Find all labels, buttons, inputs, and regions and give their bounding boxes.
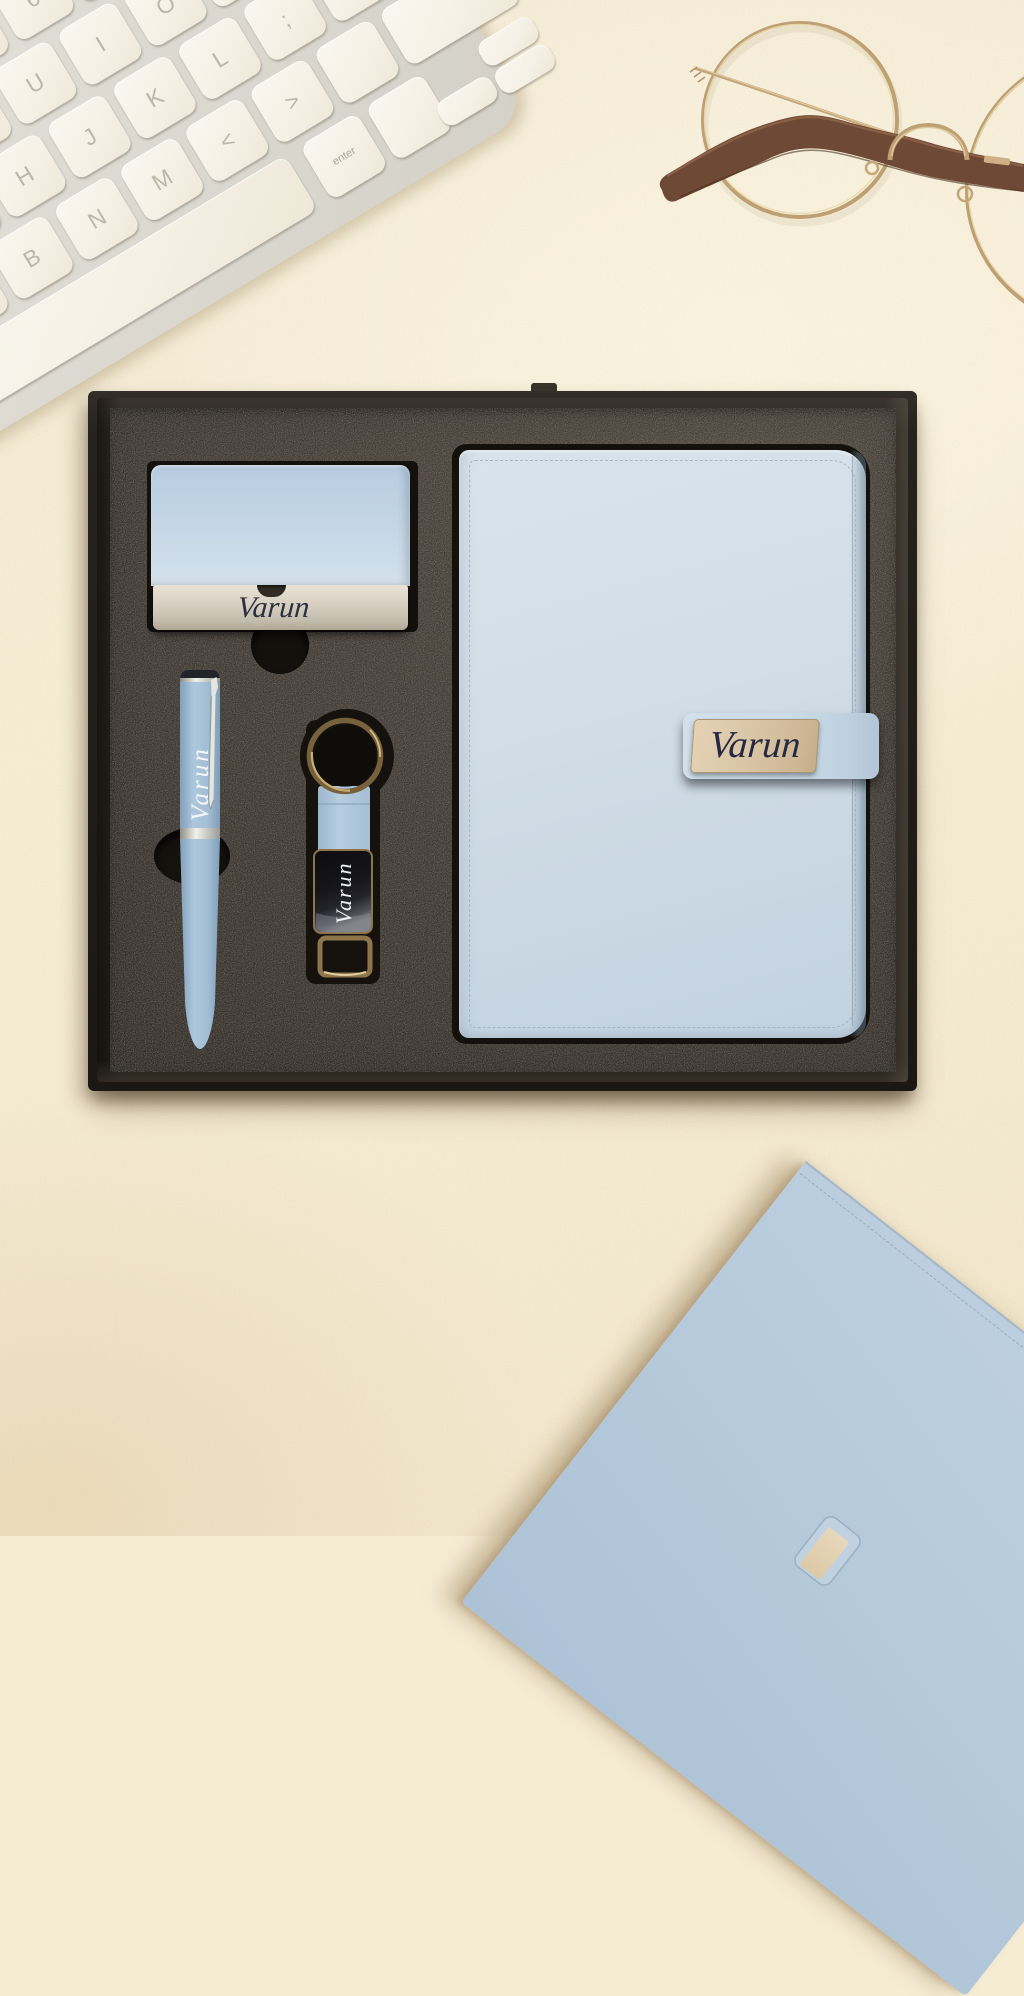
svg-text:Varun: Varun: [331, 861, 356, 924]
svg-text:Varun: Varun: [187, 746, 214, 821]
